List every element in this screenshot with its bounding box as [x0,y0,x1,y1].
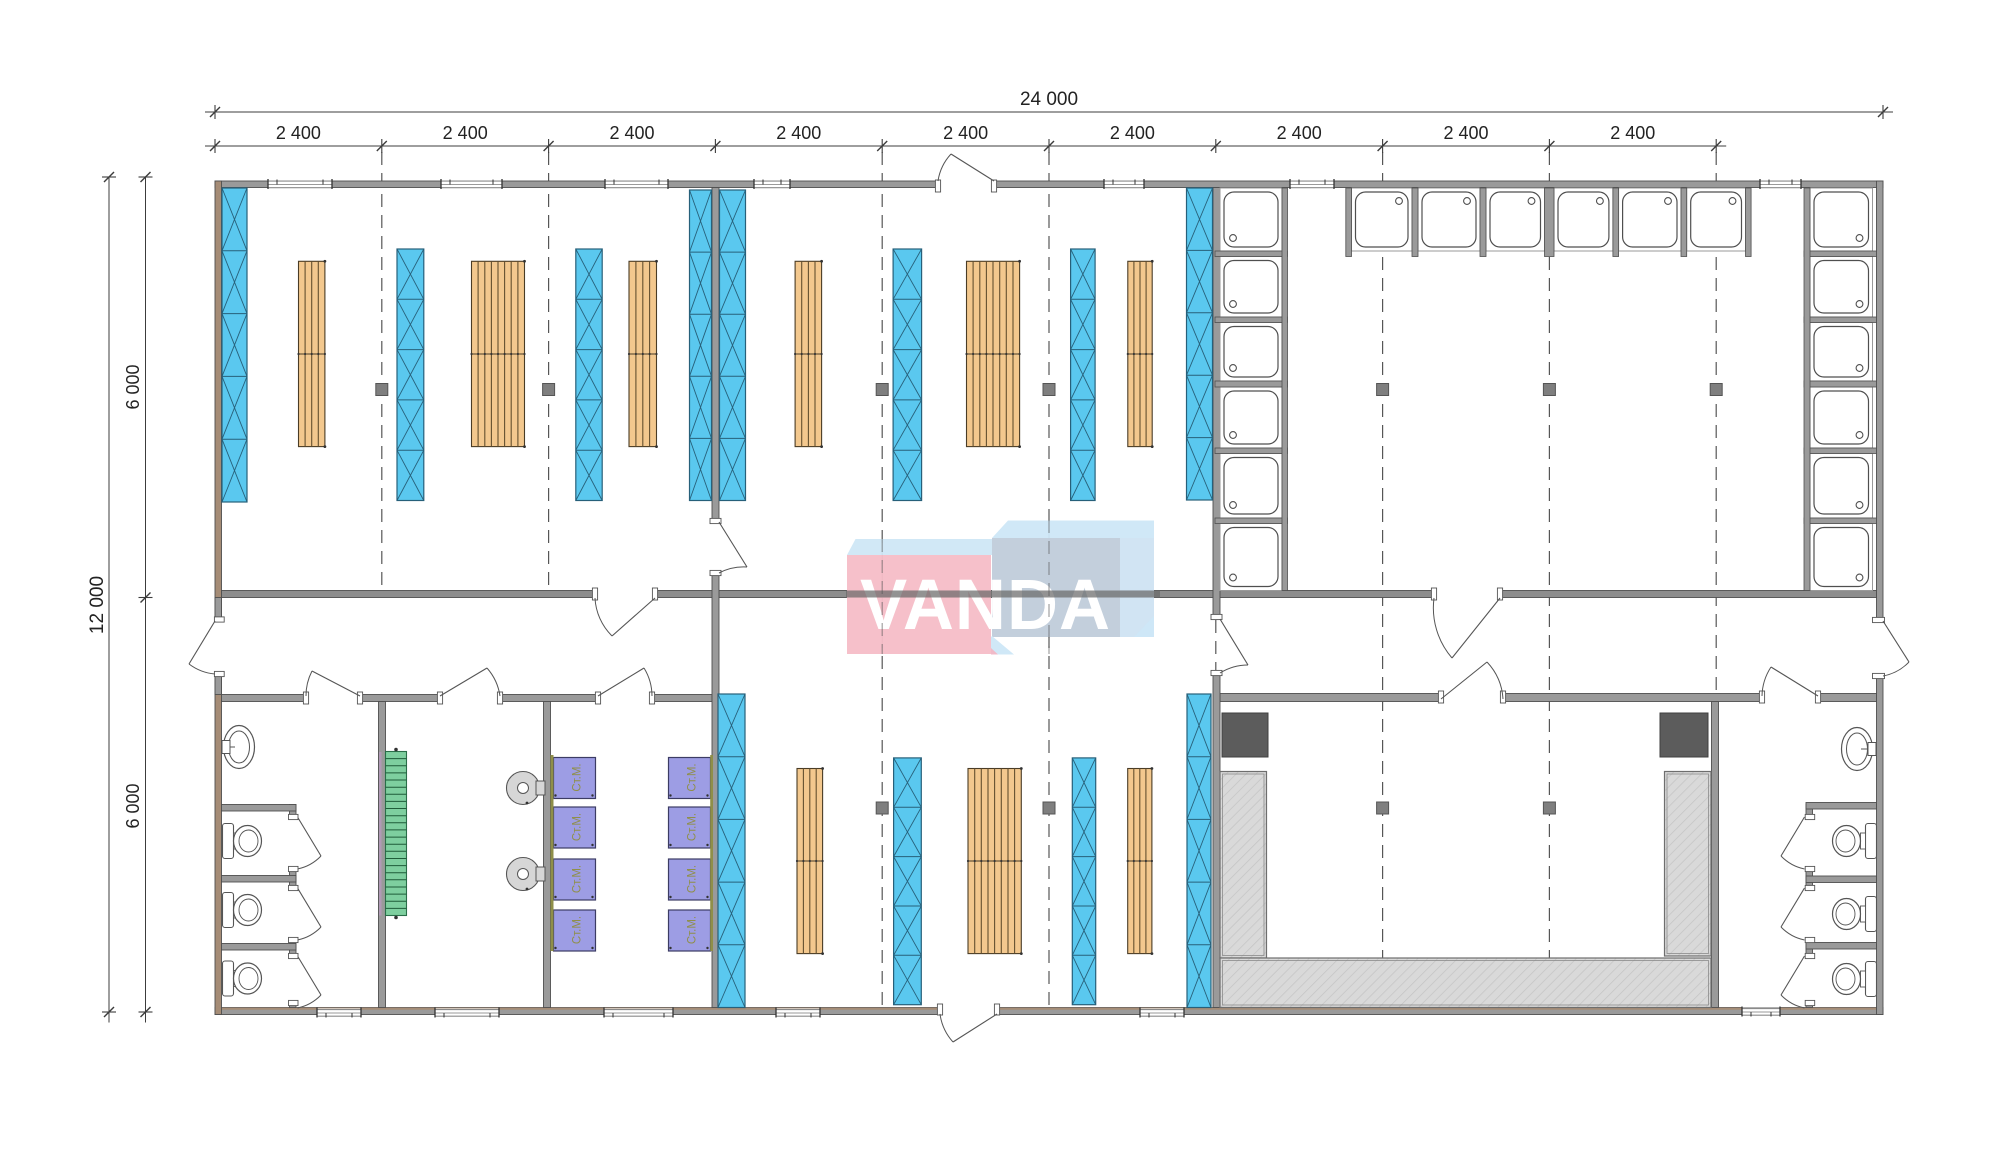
svg-text:Ст.М.: Ст.М. [572,865,584,893]
svg-text:Ст.М.: Ст.М. [687,916,699,944]
svg-text:Ст.М.: Ст.М. [687,763,699,791]
svg-text:Ст.М.: Ст.М. [572,916,584,944]
svg-text:2 400: 2 400 [1110,123,1155,143]
svg-text:12 000: 12 000 [87,576,108,634]
svg-text:2 400: 2 400 [776,123,821,143]
svg-text:2 400: 2 400 [943,123,988,143]
svg-text:2 400: 2 400 [1610,123,1655,143]
svg-text:VANDA: VANDA [860,566,1111,645]
svg-text:2 400: 2 400 [609,123,654,143]
svg-text:2 400: 2 400 [1277,123,1322,143]
svg-text:Ст.М.: Ст.М. [572,763,584,791]
svg-text:2 400: 2 400 [1443,123,1488,143]
svg-text:Ст.М.: Ст.М. [572,813,584,841]
svg-text:6 000: 6 000 [123,364,143,409]
svg-text:2 400: 2 400 [276,123,321,143]
svg-text:Ст.М.: Ст.М. [687,813,699,841]
svg-text:24 000: 24 000 [1020,89,1078,110]
svg-text:Ст.М.: Ст.М. [687,865,699,893]
svg-text:6 000: 6 000 [123,783,143,828]
svg-text:2 400: 2 400 [443,123,488,143]
